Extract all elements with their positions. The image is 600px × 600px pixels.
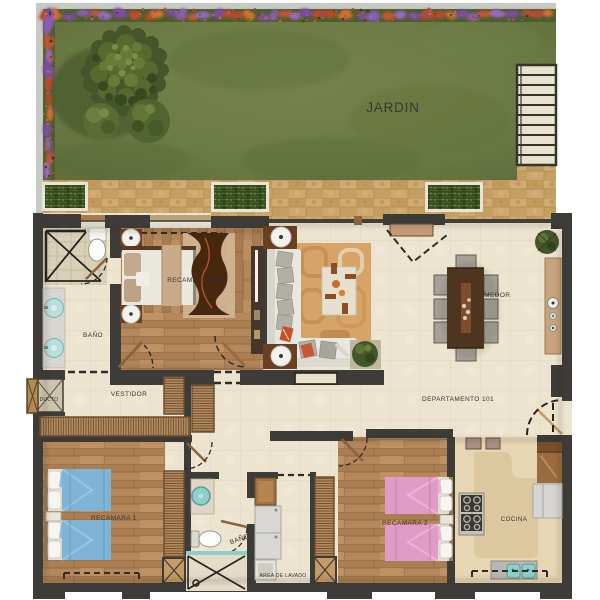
svg-text:RECAMARA PPAL: RECAMARA PPAL (167, 277, 227, 284)
svg-text:RECAMARA 1: RECAMARA 1 (91, 515, 137, 522)
svg-text:BAÑO: BAÑO (83, 330, 103, 339)
svg-text:COCINA: COCINA (501, 516, 528, 523)
svg-text:DUCTO: DUCTO (40, 397, 59, 403)
svg-text:DEPARTAMENTO 101: DEPARTAMENTO 101 (422, 396, 494, 403)
svg-text:VESTIDOR: VESTIDOR (111, 391, 147, 398)
svg-text:RECAMARA 2: RECAMARA 2 (382, 520, 428, 527)
svg-text:JARDIN: JARDIN (366, 100, 420, 115)
